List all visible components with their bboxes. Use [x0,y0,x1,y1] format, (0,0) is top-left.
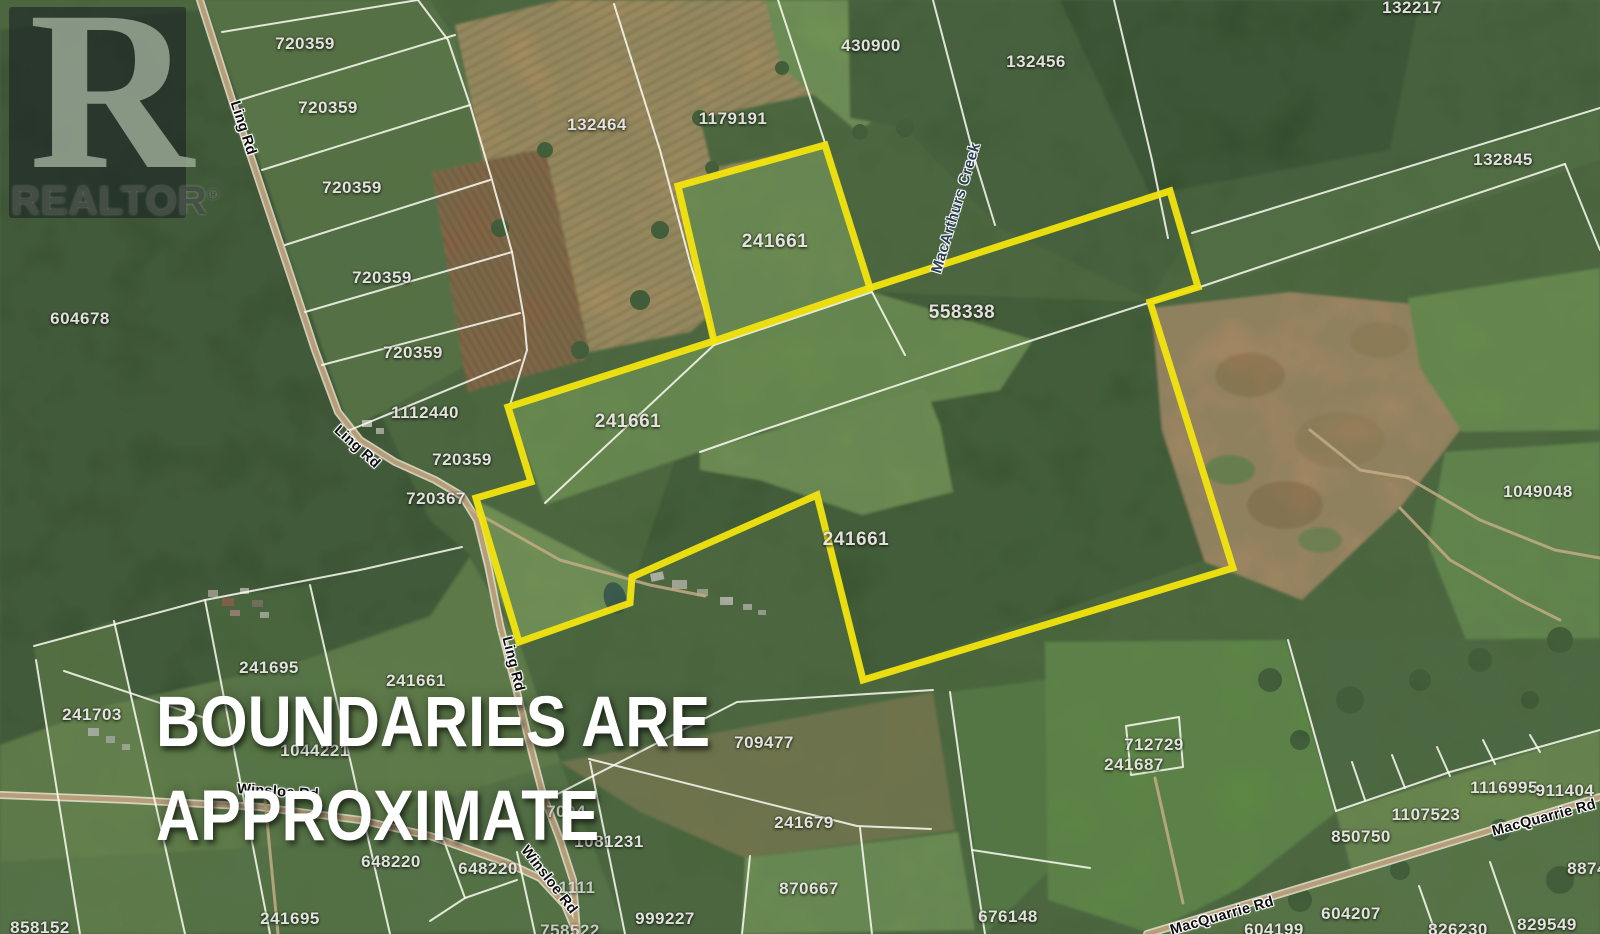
realtor-logo-r-icon: R [29,0,194,205]
aerial-parcel-map: 7203597203597203597203596046787203591112… [0,0,1600,934]
parcel-line [285,180,490,245]
parcel-line [1392,755,1405,788]
parcel-line [322,313,520,365]
parcel-line [1288,640,1336,811]
parcel-line [1192,108,1600,233]
parcel-line [778,0,825,143]
parcel-line [700,287,1198,452]
parcel-line [1490,862,1515,934]
parcel-line [465,880,517,898]
parcel-line [1200,164,1565,287]
parcel-line [714,292,872,345]
parcel-line [222,0,418,32]
parcel-line [950,692,985,934]
property-boundary-highlight [476,145,1233,680]
highlighted-boundary-square [678,145,870,341]
parcel-line [517,852,535,934]
parcel-line [872,292,905,355]
parcel-line [240,35,455,100]
parcel-line [972,850,1090,868]
parcel-line [860,828,872,934]
disclaimer-line1: BOUNDARIES ARE [156,676,710,770]
parcel-line [262,105,470,170]
realtor-watermark: R REALTOR® [9,7,199,222]
parcel-line [418,0,527,405]
highlighted-boundary-main [476,191,1233,680]
parcel-line [34,547,462,646]
parcel-line [1336,730,1600,811]
parcel-line [305,252,512,312]
parcel-line [1126,717,1183,775]
parcel-line [1419,886,1436,934]
parcel-line [350,360,520,430]
realtor-wordmark: REALTOR® [11,179,220,224]
registered-trademark-icon: ® [208,187,220,204]
parcel-line [933,0,995,225]
parcel-line [1352,762,1365,800]
disclaimer-line2: APPROXIMATE [156,770,710,864]
parcel-line [742,856,750,934]
parcel-line [1437,747,1450,776]
parcel-line [1565,164,1600,250]
boundaries-disclaimer: BOUNDARIES ARE APPROXIMATE [156,676,710,863]
